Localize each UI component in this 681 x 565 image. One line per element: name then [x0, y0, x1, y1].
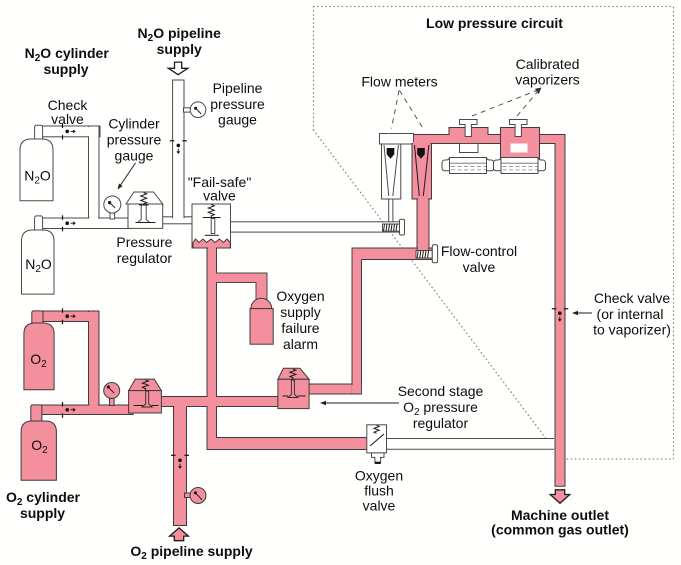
svg-text:gauge: gauge — [218, 112, 257, 128]
svg-text:valve: valve — [363, 498, 396, 514]
svg-text:supply: supply — [157, 41, 202, 57]
svg-text:Cylinder: Cylinder — [108, 116, 160, 132]
svg-text:Calibrated: Calibrated — [516, 56, 580, 72]
svg-text:alarm: alarm — [283, 336, 318, 352]
svg-text:Check valve: Check valve — [594, 290, 670, 306]
svg-text:(common gas outlet): (common gas outlet) — [491, 522, 629, 538]
svg-text:valve: valve — [203, 188, 236, 204]
svg-text:Pressure: Pressure — [116, 234, 172, 250]
svg-text:regulator: regulator — [413, 415, 469, 431]
svg-text:Flow meters: Flow meters — [361, 74, 437, 90]
svg-text:vaporizers: vaporizers — [515, 72, 580, 88]
svg-text:supply: supply — [20, 505, 65, 521]
svg-text:Pipeline: Pipeline — [213, 80, 263, 96]
svg-text:(or internal: (or internal — [597, 306, 664, 322]
svg-text:Low pressure circuit: Low pressure circuit — [426, 15, 563, 31]
svg-text:Second stage: Second stage — [398, 383, 484, 399]
svg-text:flush: flush — [364, 483, 394, 499]
svg-text:Flow-control: Flow-control — [441, 243, 517, 259]
svg-text:pressure: pressure — [107, 132, 162, 148]
svg-text:supply: supply — [43, 61, 88, 77]
svg-text:valve: valve — [463, 259, 496, 275]
svg-text:Oxygen: Oxygen — [276, 288, 324, 304]
svg-text:Oxygen: Oxygen — [355, 468, 403, 484]
svg-text:valve: valve — [51, 111, 84, 127]
svg-text:supply: supply — [280, 304, 320, 320]
svg-text:gauge: gauge — [115, 148, 154, 164]
svg-text:to vaporizer): to vaporizer) — [593, 322, 671, 338]
svg-text:pressure: pressure — [210, 96, 265, 112]
svg-text:regulator: regulator — [117, 250, 173, 266]
svg-text:failure: failure — [281, 320, 319, 336]
